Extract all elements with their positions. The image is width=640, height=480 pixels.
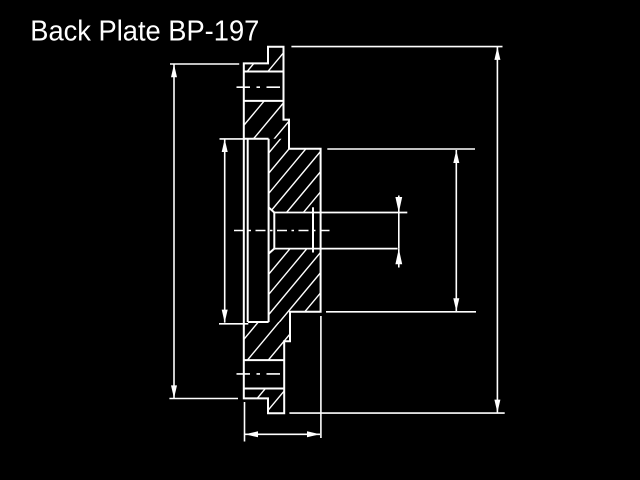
svg-text:Back Plate BP-197: Back Plate BP-197 (30, 16, 259, 48)
